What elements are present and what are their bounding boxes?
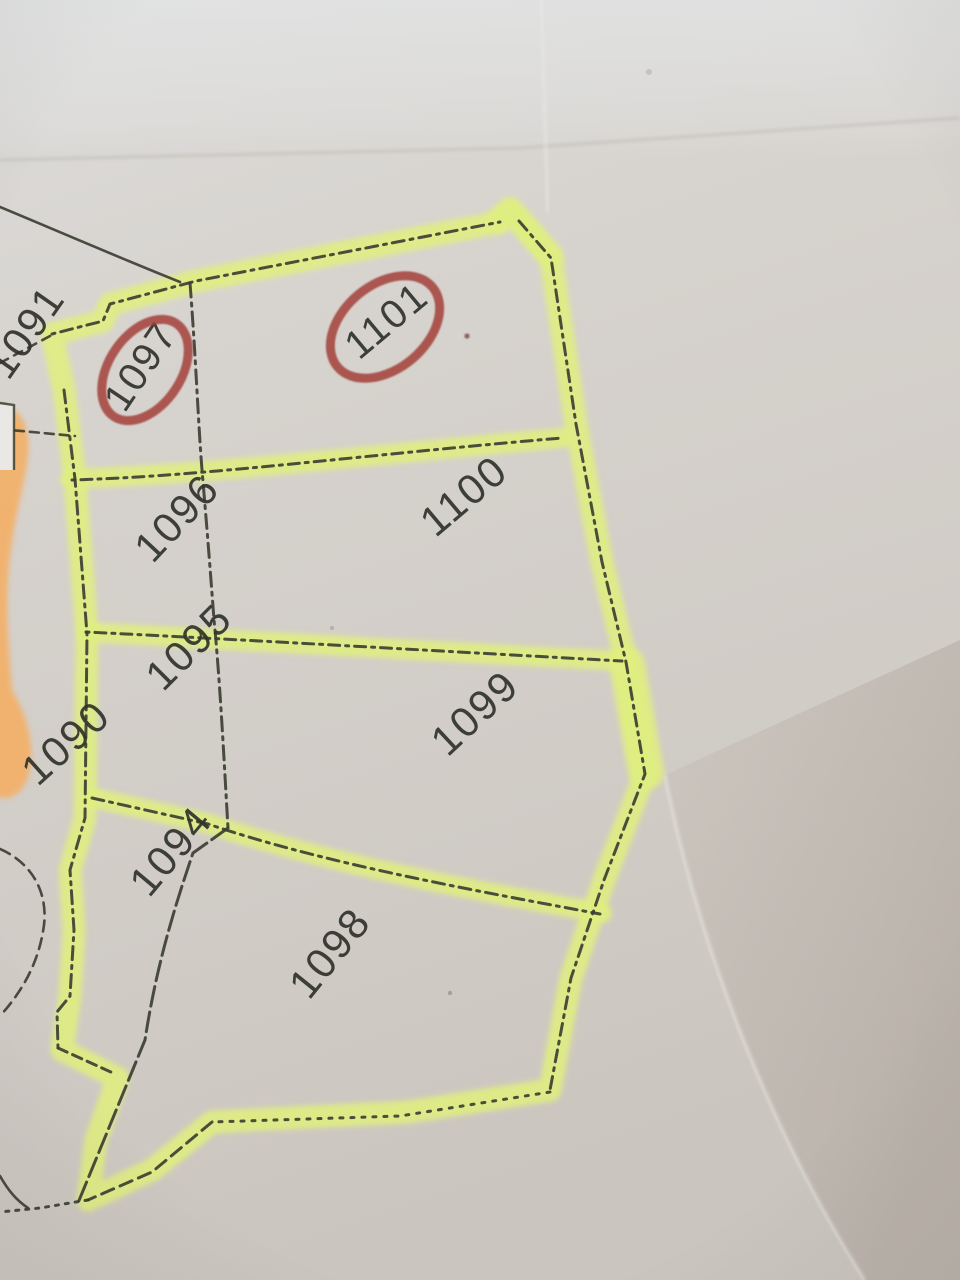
cadastral-map-canvas: 1091 1097 1101 1096 1100 1095 1099 1090 … — [0, 0, 960, 1280]
paper-vignette — [0, 0, 960, 1280]
map-photo: 1091 1097 1101 1096 1100 1095 1099 1090 … — [0, 0, 960, 1280]
